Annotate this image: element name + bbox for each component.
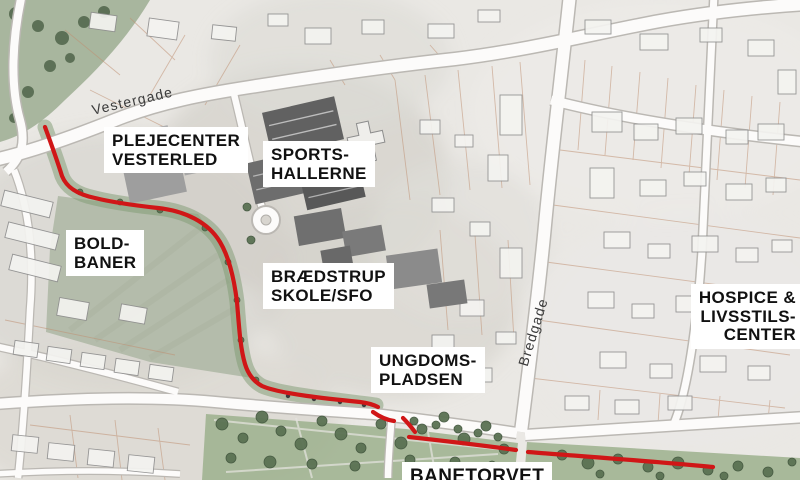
label-line: UNGDOMS- bbox=[379, 352, 477, 371]
label-line: SPORTS- bbox=[271, 146, 367, 165]
label-line: BANER bbox=[74, 254, 136, 273]
label-ungdomspladsen: UNGDOMS- PLADSEN bbox=[371, 347, 485, 393]
label-plejecenter-vesterled: PLEJECENTER VESTERLED bbox=[104, 127, 248, 173]
label-line: BOLD- bbox=[74, 235, 136, 254]
label-boldbaner: BOLD- BANER bbox=[66, 230, 144, 276]
label-line: BRÆDSTRUP bbox=[271, 268, 386, 287]
label-hospice-livsstilscenter: HOSPICE & LIVSSTILS- CENTER bbox=[691, 284, 800, 349]
map-canvas: PLEJECENTER VESTERLED SPORTS- HALLERNE B… bbox=[0, 0, 800, 480]
label-line: PLEJECENTER bbox=[112, 132, 240, 151]
label-line: VESTERLED bbox=[112, 151, 240, 170]
label-line: CENTER bbox=[699, 326, 796, 345]
label-sportshallerne: SPORTS- HALLERNE bbox=[263, 141, 375, 187]
label-banetorvet: BANETORVET bbox=[402, 462, 552, 480]
label-line: SKOLE/SFO bbox=[271, 287, 386, 306]
label-line: HALLERNE bbox=[271, 165, 367, 184]
label-line: HOSPICE & bbox=[699, 289, 796, 308]
label-line: PLADSEN bbox=[379, 371, 477, 390]
label-line: LIVSSTILS- bbox=[699, 308, 796, 327]
label-line: BANETORVET bbox=[410, 467, 544, 480]
label-braedstrup-skole: BRÆDSTRUP SKOLE/SFO bbox=[263, 263, 394, 309]
roundabout bbox=[252, 206, 280, 234]
school-building bbox=[386, 249, 442, 290]
